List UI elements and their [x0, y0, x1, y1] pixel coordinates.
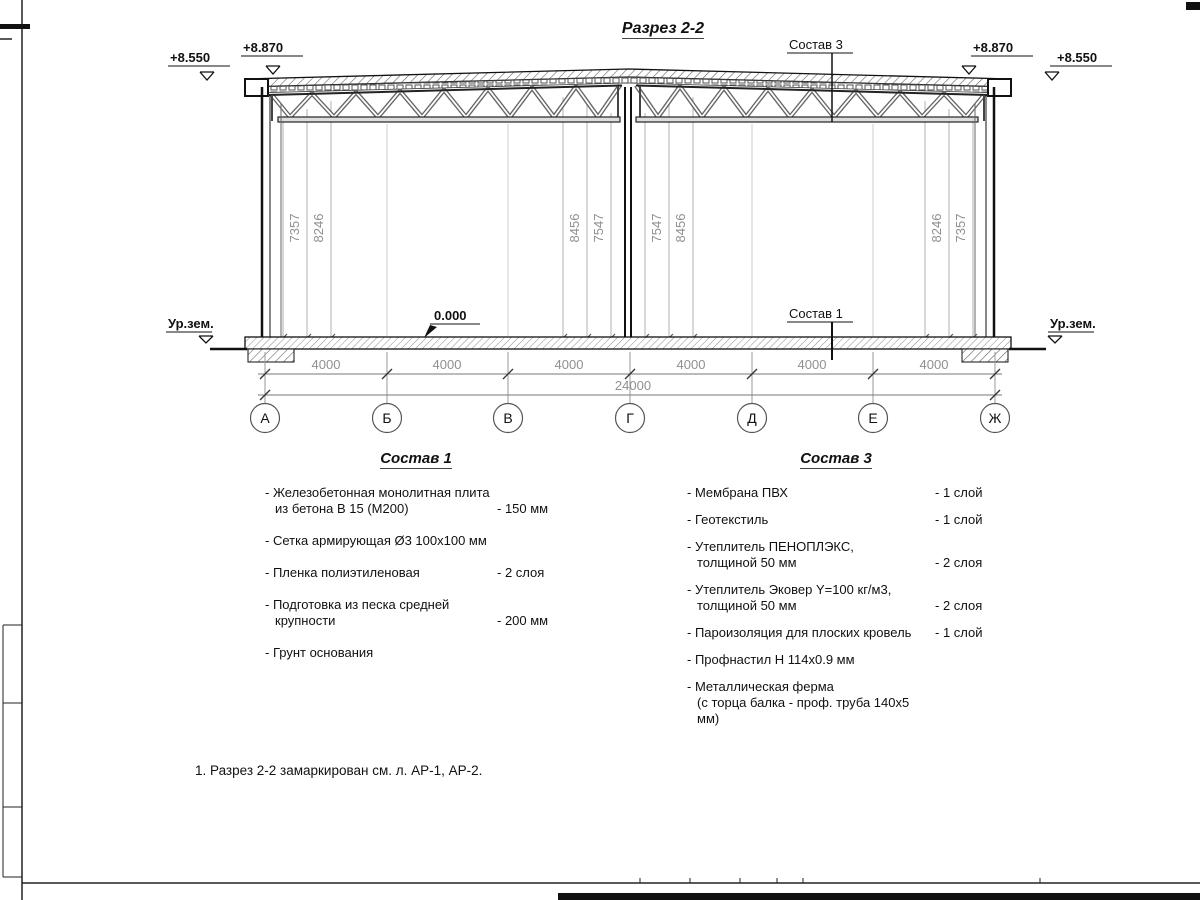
level-left-parapet-text: +8.870: [243, 40, 283, 55]
list-item: - Подготовка из песка среднейкрупности -…: [265, 597, 557, 629]
axis-label-zh: Ж: [989, 410, 1002, 426]
item-value: - 2 слоя: [935, 598, 982, 614]
vdim-cleft-1: 7547: [591, 214, 606, 243]
composition-1-list: - Железобетонная монолитная плитаиз бето…: [265, 485, 557, 677]
item-value: - 1 слой: [935, 625, 983, 641]
item-name-line2: толщиной 50 мм: [687, 555, 935, 571]
axis-label-v: В: [503, 410, 512, 426]
level-mark-left-outer: +8.550: [168, 50, 230, 80]
hdim-bay-0: 4000: [312, 357, 341, 372]
vdim-cright-1: 8456: [673, 214, 688, 243]
vertical-dim-labels: 7357 8246 8456 7547 7547 8456 8246 7357: [287, 214, 968, 243]
callout-floor-composition: Состав 1: [787, 306, 853, 360]
vdim-right-0: 8246: [929, 214, 944, 243]
level-mark-floor-zero: 0.000: [424, 308, 480, 338]
axis-label-d: Д: [747, 410, 757, 426]
item-name: - Грунт основания: [265, 645, 497, 661]
axis-bubbles: А Б В Г Д Е Ж: [251, 404, 1010, 433]
sheet-frame: [0, 0, 1200, 900]
level-mark-right-outer: +8.550: [1045, 50, 1112, 80]
level-left-outer-text: +8.550: [170, 50, 210, 65]
ground-label-left-text: Ур.зем.: [168, 316, 214, 331]
ground-label-right-text: Ур.зем.: [1050, 316, 1096, 331]
item-value: - 2 слоя: [935, 555, 982, 571]
item-name-line2: толщиной 50 мм: [687, 598, 935, 614]
list-item: - Грунт основания: [265, 645, 557, 661]
composition-1-heading-text: Состав 1: [380, 450, 452, 469]
section-drawing-svg: +8.550 +8.870 +8.870 +8.550 0.000 Ур.зем…: [0, 0, 1200, 900]
item-value: - 1 слой: [935, 485, 983, 501]
hdim-bay-2: 4000: [555, 357, 584, 372]
drawing-sheet: +8.550 +8.870 +8.870 +8.550 0.000 Ур.зем…: [0, 0, 1200, 900]
vdim-left-0: 7357: [287, 214, 302, 243]
callout-roof-text: Состав 3: [789, 37, 843, 52]
item-name: - Пленка полиэтиленовая: [265, 565, 497, 581]
list-item: - Пленка полиэтиленовая - 2 слоя: [265, 565, 557, 581]
drawing-title: Разрез 2-2: [578, 20, 748, 38]
composition-1-heading: Состав 1: [336, 450, 496, 467]
sheet-note: 1. Разрез 2-2 замаркирован см. л. АР-1, …: [195, 763, 482, 778]
list-item: - Пароизоляция для плоских кровель - 1 с…: [687, 625, 989, 641]
list-item: - Геотекстиль - 1 слой: [687, 512, 989, 528]
axis-label-g: Г: [626, 410, 634, 426]
item-name-line2: крупности: [265, 613, 497, 629]
vdim-right-1: 7357: [953, 214, 968, 243]
item-name: - Геотекстиль: [687, 512, 935, 528]
level-floor-zero-text: 0.000: [434, 308, 467, 323]
item-name: - Пароизоляция для плоских кровель: [687, 625, 935, 641]
drawing-title-text: Разрез 2-2: [622, 20, 704, 39]
hdim-bay-4: 4000: [798, 357, 827, 372]
list-item: - Утеплитель Эковер Y=100 кг/м3,толщиной…: [687, 582, 989, 614]
axis-label-a: А: [260, 410, 270, 426]
level-right-outer-text: +8.550: [1057, 50, 1097, 65]
item-name: - Подготовка из песка средней: [265, 597, 497, 613]
ground-label-left: Ур.зем.: [166, 316, 214, 343]
ground-label-right: Ур.зем.: [1048, 316, 1096, 343]
list-item: - Железобетонная монолитная плитаиз бето…: [265, 485, 557, 517]
vdim-cleft-0: 8456: [567, 214, 582, 243]
dimension-chain: 4000 4000 4000 4000 4000 4000 24000: [258, 352, 1002, 403]
hdim-bay-3: 4000: [677, 357, 706, 372]
list-item: - Металлическая ферма(с торца балка - пр…: [687, 679, 989, 727]
item-value: - 2 слоя: [497, 565, 544, 581]
item-name: - Мембрана ПВХ: [687, 485, 935, 501]
item-name-line2: (с торца балка - проф. труба 140х5 мм): [687, 695, 935, 727]
item-name-line2: из бетона В 15 (М200): [265, 501, 497, 517]
composition-3-heading-text: Состав 3: [800, 450, 872, 469]
item-value: - 1 слой: [935, 512, 983, 528]
level-mark-right-parapet: +8.870: [962, 40, 1033, 74]
callout-floor-text: Состав 1: [789, 306, 843, 321]
level-mark-left-parapet: +8.870: [241, 40, 303, 74]
composition-3-heading: Состав 3: [756, 450, 916, 467]
item-name: - Утеплитель Эковер Y=100 кг/м3,: [687, 582, 935, 598]
item-value: - 200 мм: [497, 613, 548, 629]
axis-label-e: Е: [868, 410, 877, 426]
axis-label-b: Б: [382, 410, 391, 426]
vdim-left-1: 8246: [311, 214, 326, 243]
item-value: - 150 мм: [497, 501, 548, 517]
list-item: - Утеплитель ПЕНОПЛЭКС,толщиной 50 мм - …: [687, 539, 989, 571]
hdim-bay-5: 4000: [920, 357, 949, 372]
item-name: - Сетка армирующая Ø3 100х100 мм: [265, 533, 497, 549]
level-right-parapet-text: +8.870: [973, 40, 1013, 55]
item-name: - Профнастил Н 114х0.9 мм: [687, 652, 935, 668]
item-name: - Металлическая ферма: [687, 679, 935, 695]
vdim-cright-0: 7547: [649, 214, 664, 243]
list-item: - Сетка армирующая Ø3 100х100 мм: [265, 533, 557, 549]
item-name: - Железобетонная монолитная плита: [265, 485, 497, 501]
walls-columns: [262, 87, 994, 350]
item-name: - Утеплитель ПЕНОПЛЭКС,: [687, 539, 935, 555]
hdim-total: 24000: [615, 378, 651, 393]
hdim-bay-1: 4000: [433, 357, 462, 372]
list-item: - Профнастил Н 114х0.9 мм: [687, 652, 989, 668]
list-item: - Мембрана ПВХ - 1 слой: [687, 485, 989, 501]
composition-3-list: - Мембрана ПВХ - 1 слой - Геотекстиль - …: [687, 485, 989, 738]
